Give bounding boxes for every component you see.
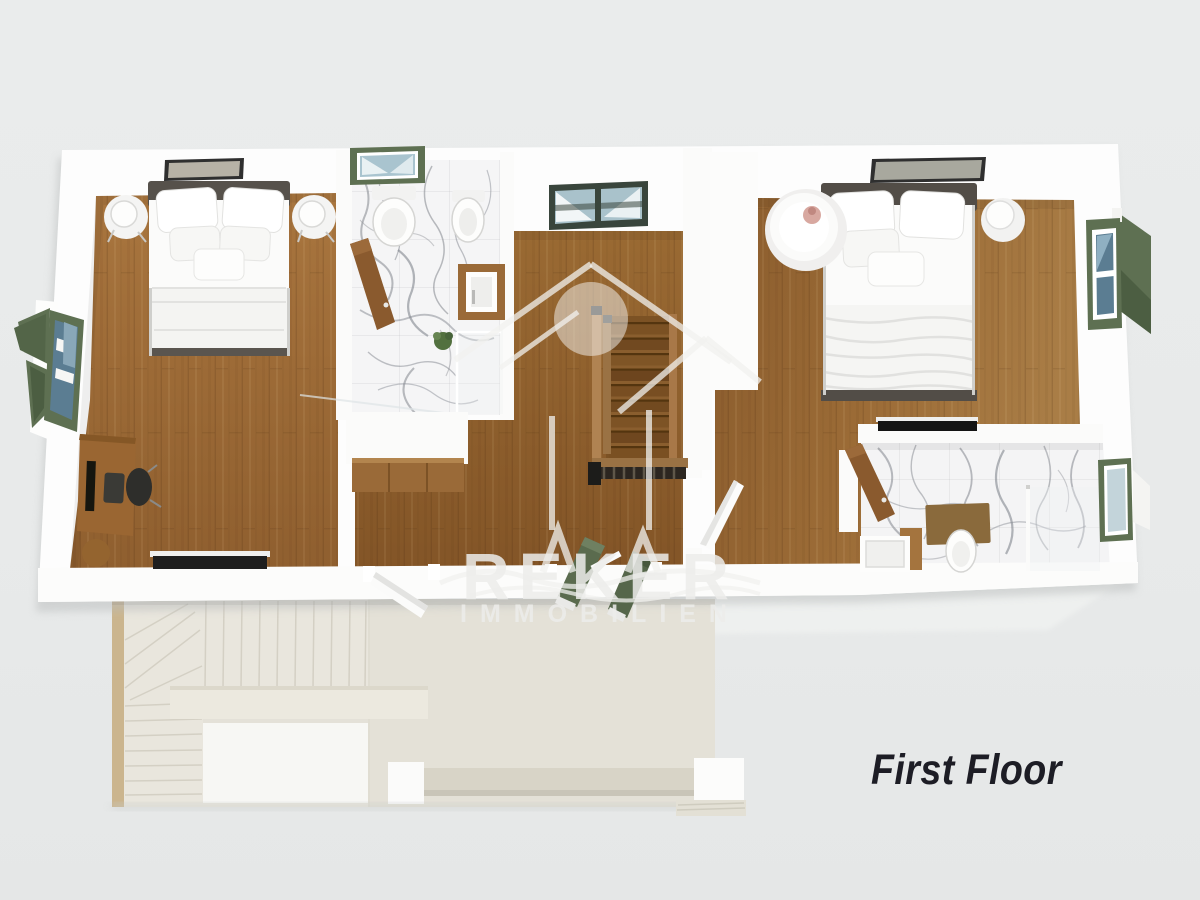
svg-text:IMMOBILIEN: IMMOBILIEN xyxy=(460,600,740,628)
svg-text:First Floor: First Floor xyxy=(871,745,1063,794)
